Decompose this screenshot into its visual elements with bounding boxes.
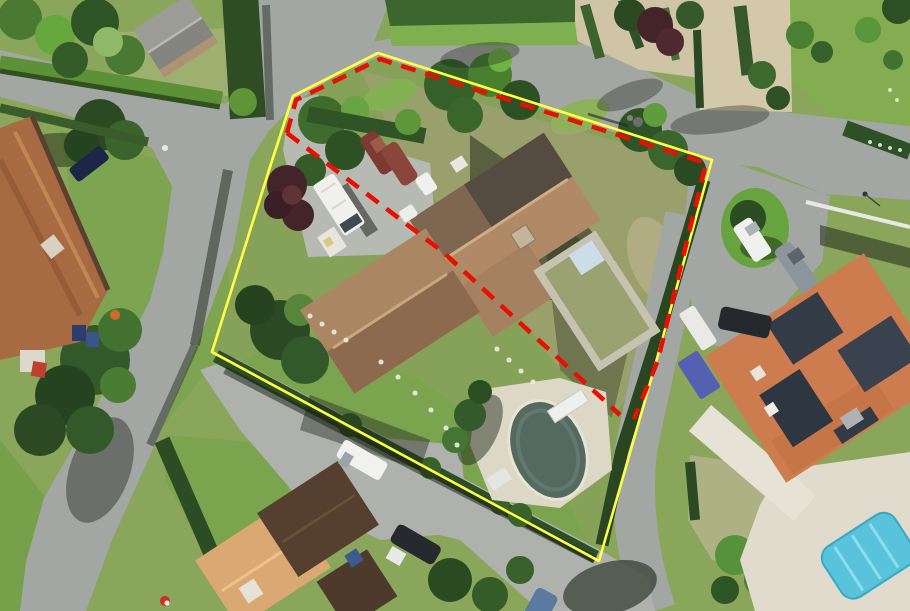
bin-on-road <box>633 117 643 127</box>
aerial-imagery-viewport <box>0 0 910 611</box>
aerial-photo <box>0 0 910 611</box>
